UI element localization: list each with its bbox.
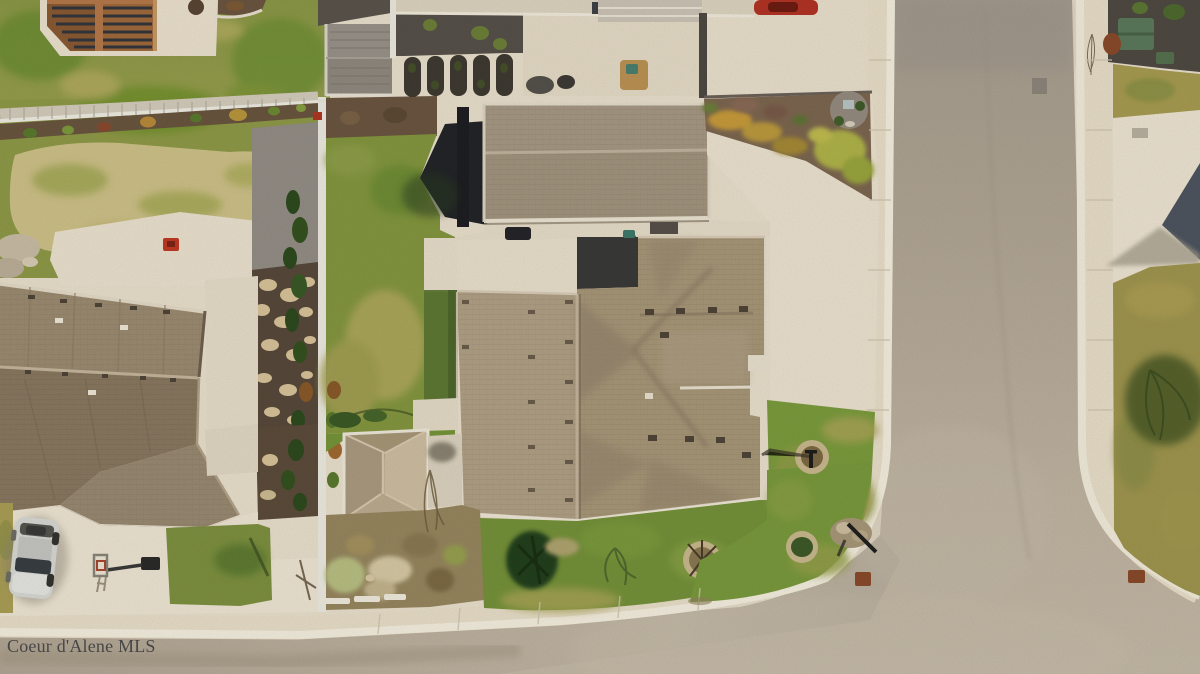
svg-text:Coeur d'Alene MLS: Coeur d'Alene MLS — [7, 636, 156, 656]
